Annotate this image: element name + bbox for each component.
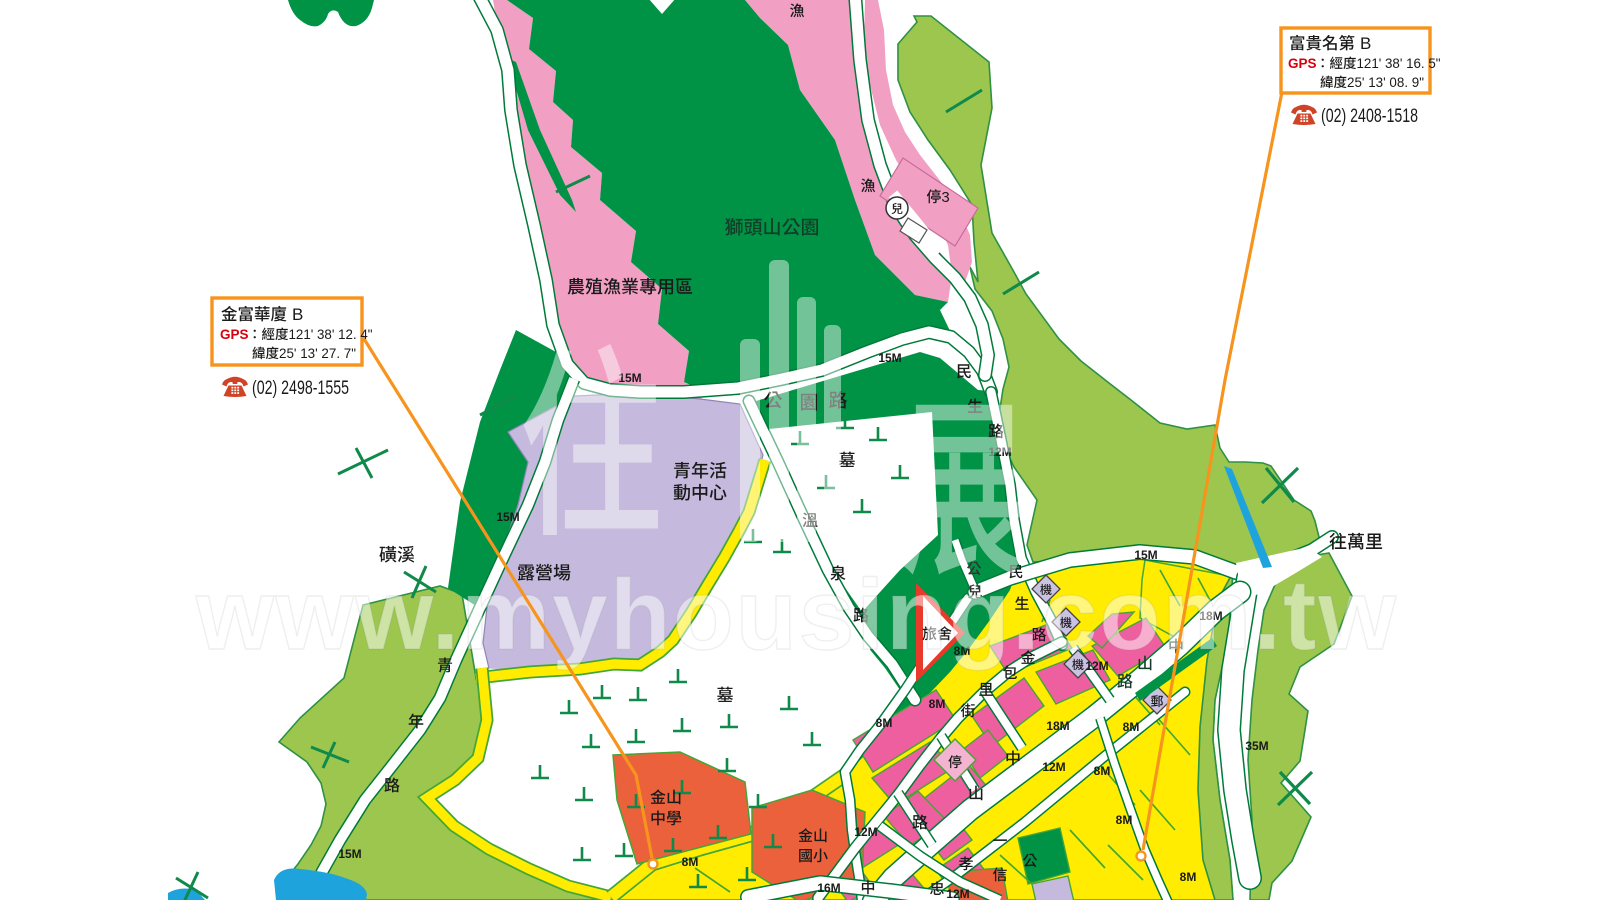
svg-text:8M: 8M xyxy=(1094,764,1111,778)
svg-text:富貴名第: 富貴名第 xyxy=(1289,30,1355,54)
svg-text:18M: 18M xyxy=(1046,719,1069,733)
svg-text:孝: 孝 xyxy=(958,853,973,874)
svg-text:金山: 金山 xyxy=(798,825,828,846)
svg-text:12M: 12M xyxy=(946,887,969,900)
svg-text:8M: 8M xyxy=(1116,813,1133,827)
svg-text:兒: 兒 xyxy=(891,200,903,217)
svg-text:B: B xyxy=(1360,34,1371,53)
svg-text:墓: 墓 xyxy=(717,681,734,706)
svg-text:(02) 2498-1555: (02) 2498-1555 xyxy=(252,378,349,399)
svg-text:8M: 8M xyxy=(1123,720,1140,734)
svg-text:12M: 12M xyxy=(854,825,877,839)
svg-text:街: 街 xyxy=(960,700,975,721)
svg-text:公: 公 xyxy=(1022,850,1037,871)
svg-text:路: 路 xyxy=(912,809,928,833)
svg-text:忠: 忠 xyxy=(929,878,944,899)
svg-text:8M: 8M xyxy=(929,697,946,711)
svg-text:www.myhousing.com.tw: www.myhousing.com.tw xyxy=(195,559,1396,671)
svg-text:動中心: 動中心 xyxy=(673,479,727,505)
svg-text:山: 山 xyxy=(968,780,984,804)
svg-text:停: 停 xyxy=(948,752,962,772)
svg-text:墓: 墓 xyxy=(839,446,856,471)
svg-text:15M: 15M xyxy=(496,510,519,524)
svg-text:8M: 8M xyxy=(876,716,893,730)
svg-text:12M: 12M xyxy=(1042,760,1065,774)
svg-text:住: 住 xyxy=(519,280,663,577)
svg-text:16M: 16M xyxy=(817,881,840,895)
svg-text:GPS: GPS xyxy=(220,327,249,342)
svg-text:中: 中 xyxy=(1005,745,1021,769)
svg-text:中學: 中學 xyxy=(650,805,682,829)
svg-text:一: 一 xyxy=(992,830,1007,851)
svg-text:金富華廈: 金富華廈 xyxy=(221,301,287,325)
svg-text:路: 路 xyxy=(1117,668,1133,692)
svg-text:漁: 漁 xyxy=(789,0,804,21)
svg-text:GPS: GPS xyxy=(1288,56,1317,71)
svg-text:15M: 15M xyxy=(338,847,361,861)
svg-text:停3: 停3 xyxy=(926,186,949,207)
svg-text:8M: 8M xyxy=(682,855,699,869)
svg-text:(02) 2408-1518: (02) 2408-1518 xyxy=(1321,106,1418,127)
svg-text:B: B xyxy=(292,305,303,324)
svg-text:中: 中 xyxy=(860,877,875,898)
svg-text:往萬里: 往萬里 xyxy=(1329,528,1383,554)
svg-text:路: 路 xyxy=(384,772,400,796)
svg-text:漁: 漁 xyxy=(860,175,875,196)
svg-text:獅頭山公園: 獅頭山公園 xyxy=(724,213,819,240)
svg-text:信: 信 xyxy=(992,864,1007,885)
svg-text:里: 里 xyxy=(978,679,993,700)
svg-text:年: 年 xyxy=(408,708,424,732)
svg-text:郵: 郵 xyxy=(1150,691,1163,710)
svg-text:8M: 8M xyxy=(1180,870,1197,884)
svg-text:國小: 國小 xyxy=(798,845,828,866)
svg-text:35M: 35M xyxy=(1245,739,1268,753)
